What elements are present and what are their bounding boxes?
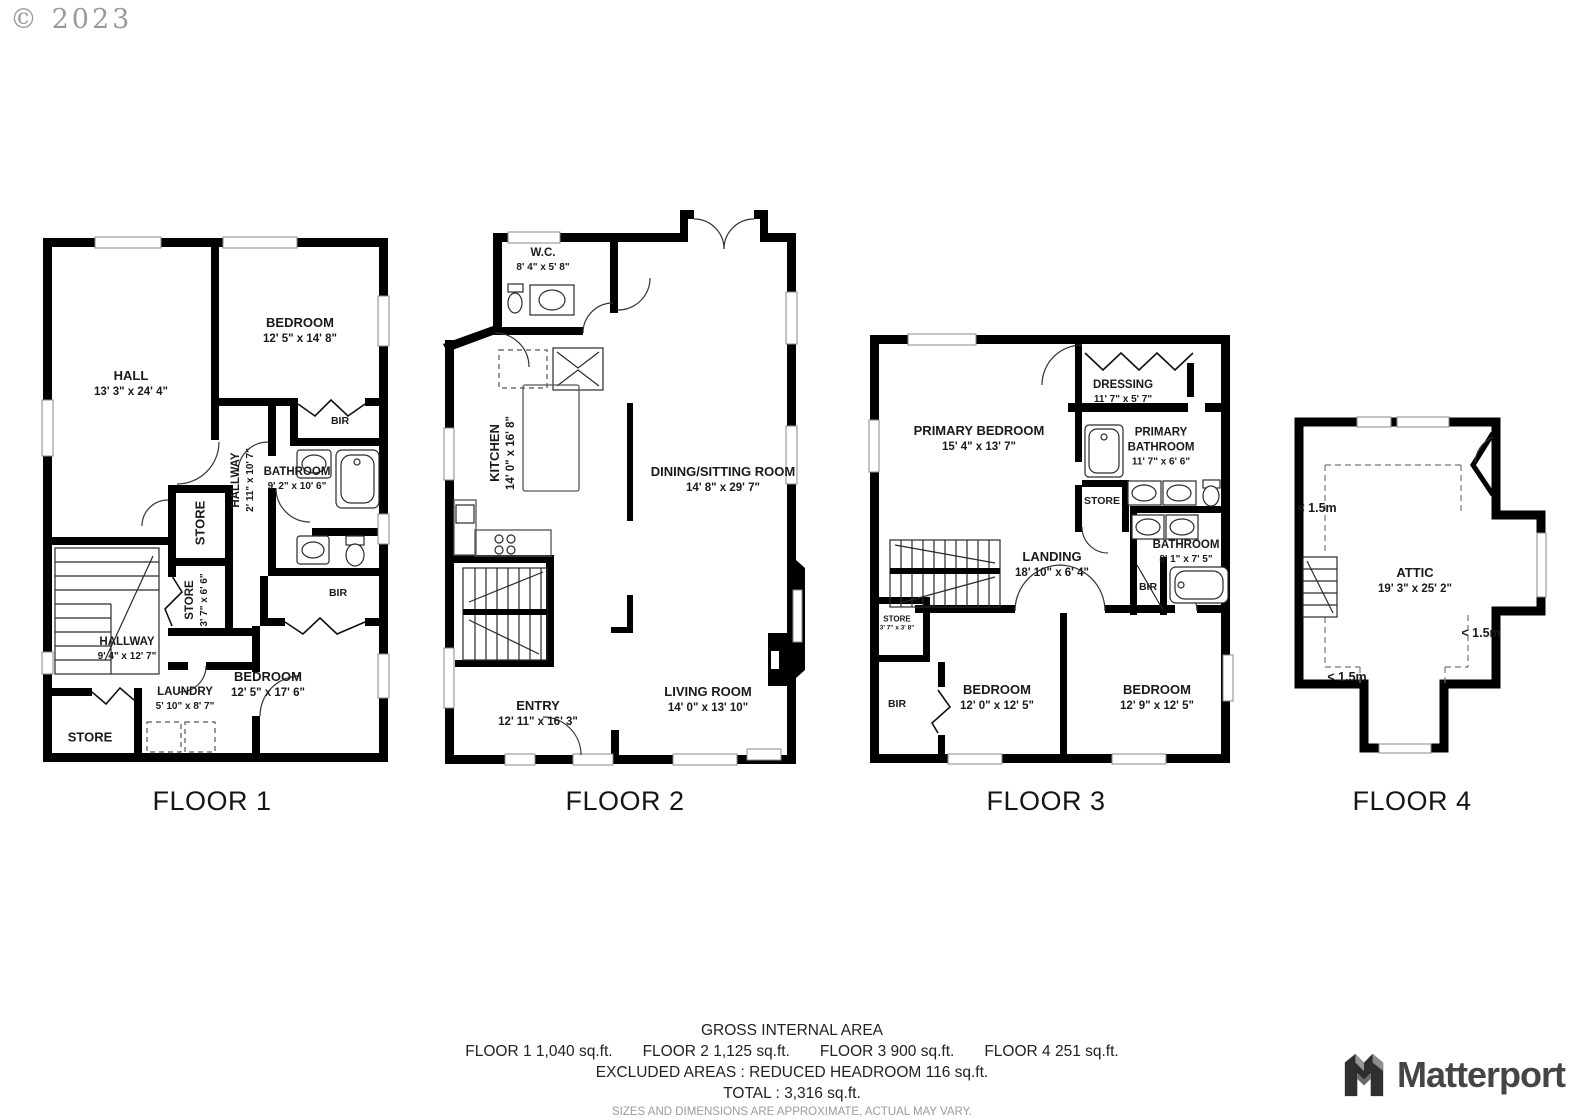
room-label-kitchen: KITCHEN 14' 0" x 16' 8" [487,416,519,490]
floor-4-caption: FLOOR 4 [1352,786,1471,817]
total-area-line: TOTAL : 3,316 sq.ft. [465,1085,1118,1103]
room-label-bedroom1: BEDROOM 12' 0" x 12' 5" [960,682,1034,714]
room-label-store-small: STORE 3' 7" x 3' 8" [880,615,915,634]
pantry-icon [499,350,547,388]
room-label-living: LIVING ROOM 14' 0" x 13' 10" [664,684,751,716]
washer-icon [147,722,181,752]
room-label-bir2: BIR [329,587,347,601]
room-label-bir1: BIR [331,415,349,429]
area-summary: GROSS INTERNAL AREA FLOOR 1 1,040 sq.ft.… [465,1022,1118,1118]
room-label-store2: STORE 3' 7" x 6' 6" [183,573,211,626]
floor-areas-line: FLOOR 1 1,040 sq.ft. FLOOR 2 1,125 sq.ft… [465,1043,1118,1061]
room-label-bedroom2: BEDROOM 12' 5" x 17' 6" [231,669,305,701]
toilet-icon [508,284,523,292]
room-label-store: STORE [1084,495,1120,509]
room-label-entry: ENTRY 12' 11" x 16' 3" [498,698,578,730]
bir-left-bifold-door-icon [932,690,950,733]
wardrobe-rail-icon [1085,353,1193,370]
appliance-icon [456,505,474,523]
copyright-year: © 2023 [10,4,132,35]
room-label-hallway2: HALLWAY 9' 4" x 12' 7" [98,635,157,663]
kitchen-island-icon [523,385,579,491]
store2-bifold-door-icon [165,576,182,626]
matterport-wordmark: Matterport [1397,1054,1565,1096]
room-label-primary-bedroom: PRIMARY BEDROOM 15' 4" x 13' 7" [914,423,1045,455]
dormer-wall-icon [1473,433,1493,495]
floor-3-plan: PRIMARY BEDROOM 15' 4" x 13' 7" DRESSING… [860,325,1240,775]
dryer-icon [185,722,215,752]
room-label-laundry: LAUNDRY 5' 10" x 8' 7" [156,685,215,713]
headroom-label-2: < 1.5m [1461,625,1500,641]
floor-1-caption: FLOOR 1 [152,786,271,817]
floor-2-area: FLOOR 2 1,125 sq.ft. [643,1043,790,1061]
bir1-bifold-door-icon [298,400,365,416]
room-label-wc: W.C. 8' 4" x 5' 8" [516,246,569,274]
floor-3-stairs [890,540,1000,607]
stove-icon [495,535,515,554]
room-label-store1: STORE [193,501,210,546]
headroom-label-1: < 1.5m [1297,500,1336,516]
gross-internal-area-title: GROSS INTERNAL AREA [465,1022,1118,1040]
floor-1-drawing [35,230,395,770]
room-label-store3: STORE [68,730,113,747]
room-label-dressing: DRESSING 11' 7" x 5' 7" [1093,378,1153,406]
disclaimer-line: SIZES AND DIMENSIONS ARE APPROXIMATE, AC… [465,1106,1118,1118]
double-door-arc [694,219,724,249]
room-label-bedroom1: BEDROOM 12' 5" x 14' 8" [263,315,337,347]
room-label-bir-right: BIR [1139,581,1157,595]
fireplace-opening [771,651,779,669]
floor-4-plan: ATTIC 19' 3" x 25' 2" < 1.5m < 1.5m < 1.… [1285,405,1555,765]
bir2-bifold-door-icon [285,618,365,634]
room-label-primary-bathroom: PRIMARY BATHROOM 11' 7" x 6' 6" [1119,426,1203,469]
floor-4-area: FLOOR 4 251 sq.ft. [984,1043,1118,1061]
double-door-arc [724,219,754,249]
matterport-logo-icon [1341,1052,1387,1098]
room-label-bathroom: BATHROOM 8' 1" x 7' 5" [1153,538,1220,566]
floor-3-area: FLOOR 3 900 sq.ft. [820,1043,954,1061]
room-label-landing: LANDING 18' 10" x 6' 4" [1015,549,1089,581]
floor-2-caption: FLOOR 2 [565,786,684,817]
floor-4-dormer [1473,433,1493,495]
room-label-bathroom: BATHROOM 9' 2" x 10' 6" [264,465,331,493]
room-label-hall: HALL 13' 3" x 24' 4" [94,368,168,400]
floor-3-caption: FLOOR 3 [986,786,1105,817]
floor-4-stairs [1303,557,1337,617]
room-label-dining: DINING/SITTING ROOM 14' 8" x 29' 7" [651,464,795,496]
floor-2-fixtures [454,284,603,556]
counter-icon [454,500,476,555]
floor-2-plan: W.C. 8' 4" x 5' 8" KITCHEN 14' 0" x 16' … [435,200,815,780]
floor-2-stairs [463,568,547,660]
store3-bifold-door-icon [92,688,134,704]
floor-1-area: FLOOR 1 1,040 sq.ft. [465,1043,612,1061]
headroom-label-3: < 1.5m [1327,669,1366,685]
matterport-brand: Matterport [1341,1052,1565,1098]
room-label-bedroom2: BEDROOM 12' 9" x 12' 5" [1120,682,1194,714]
floor-1-plan: HALL 13' 3" x 24' 4" BEDROOM 12' 5" x 14… [35,230,395,770]
excluded-areas-line: EXCLUDED AREAS : REDUCED HEADROOM 116 sq… [465,1064,1118,1082]
room-label-attic: ATTIC 19' 3" x 25' 2" [1378,565,1452,597]
room-label-hallway1: HALLWAY 2' 11" x 10' 7" [229,448,257,512]
room-label-bir-left: BIR [888,698,906,712]
